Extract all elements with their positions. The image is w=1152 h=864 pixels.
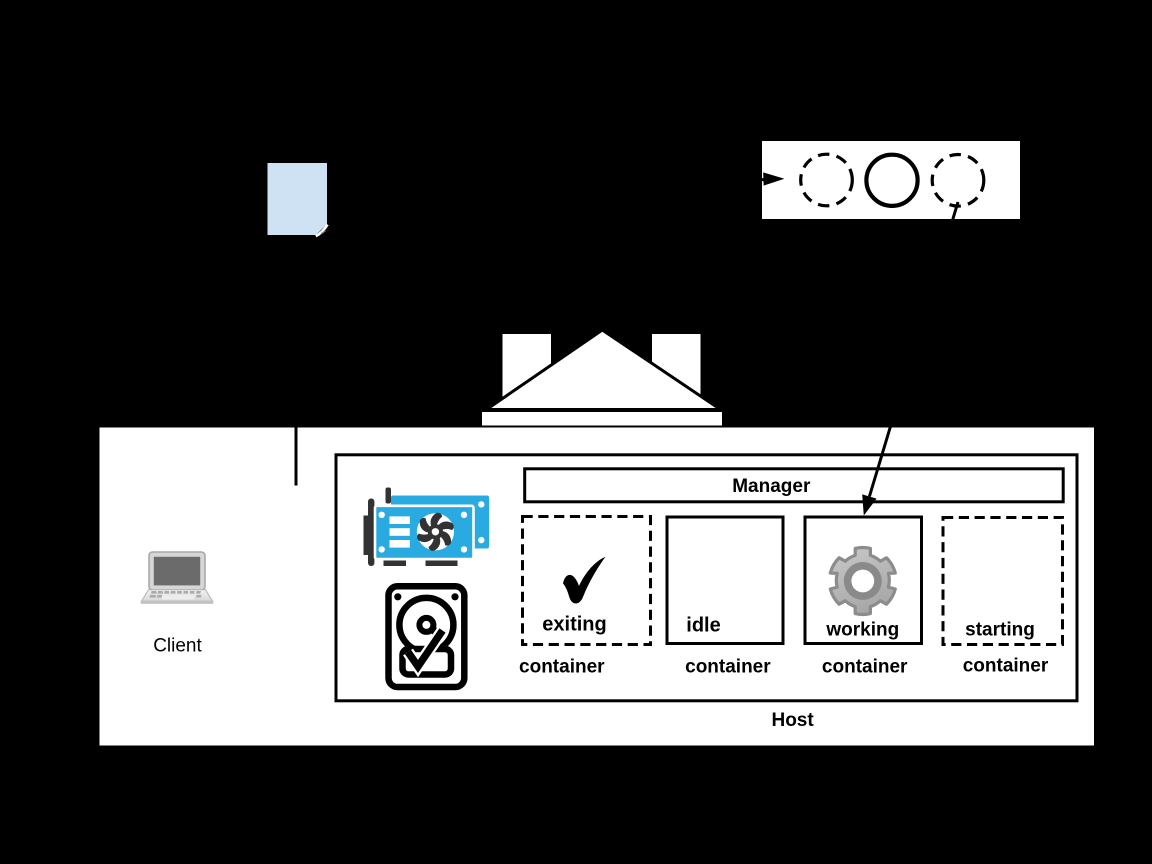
svg-text:Manager: Manager xyxy=(732,476,811,497)
svg-text:container: container xyxy=(685,657,771,678)
svg-text:container: container xyxy=(519,656,605,677)
svg-text:exiting: exiting xyxy=(542,614,606,636)
svg-text:Host: Host xyxy=(771,710,814,731)
svg-text:Client: Client xyxy=(153,636,202,657)
svg-text:container: container xyxy=(822,657,908,678)
svg-text:working: working xyxy=(825,620,899,641)
svg-text:container: container xyxy=(963,656,1049,677)
svg-text:idle: idle xyxy=(686,614,720,636)
svg-text:starting: starting xyxy=(965,620,1035,641)
